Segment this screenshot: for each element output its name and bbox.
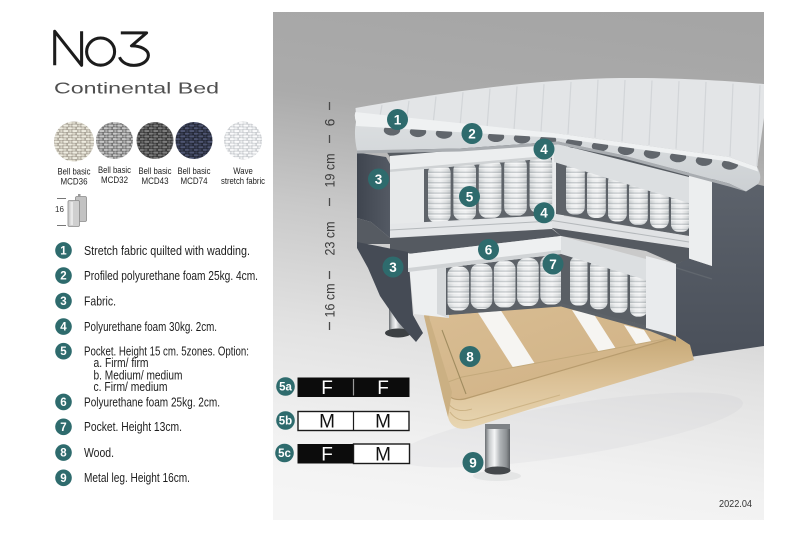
svg-text:9: 9 bbox=[469, 455, 477, 470]
svg-text:16: 16 bbox=[55, 205, 64, 214]
svg-text:19 cm: 19 cm bbox=[322, 154, 338, 188]
svg-text:1: 1 bbox=[60, 245, 67, 257]
svg-text:Profiled polyurethane foam 25k: Profiled polyurethane foam 25kg. 4cm. bbox=[84, 268, 258, 283]
svg-text:M: M bbox=[375, 445, 391, 466]
svg-text:MCD36: MCD36 bbox=[61, 177, 88, 188]
svg-text:MCD43: MCD43 bbox=[142, 176, 169, 187]
svg-text:5c: 5c bbox=[278, 448, 291, 460]
svg-text:5b: 5b bbox=[279, 416, 292, 428]
svg-text:5: 5 bbox=[60, 346, 67, 358]
svg-text:7: 7 bbox=[60, 422, 66, 434]
svg-text:3: 3 bbox=[389, 260, 397, 275]
svg-text:1: 1 bbox=[394, 112, 402, 127]
svg-text:M: M bbox=[375, 412, 391, 433]
svg-text:Wood.: Wood. bbox=[84, 445, 114, 460]
svg-text:Polyurethane foam 30kg. 2cm.: Polyurethane foam 30kg. 2cm. bbox=[84, 319, 217, 334]
svg-text:5: 5 bbox=[466, 189, 474, 204]
svg-text:Continental Bed: Continental Bed bbox=[54, 81, 219, 98]
svg-text:4: 4 bbox=[60, 322, 67, 334]
svg-text:2: 2 bbox=[468, 126, 476, 141]
svg-text:Polyurethane foam 25kg. 2cm.: Polyurethane foam 25kg. 2cm. bbox=[84, 394, 220, 409]
svg-text:7: 7 bbox=[549, 257, 557, 272]
svg-text:Fabric.: Fabric. bbox=[84, 293, 116, 308]
svg-text:F: F bbox=[377, 378, 389, 399]
svg-text:8: 8 bbox=[466, 349, 474, 364]
svg-text:6: 6 bbox=[485, 242, 493, 257]
svg-text:F: F bbox=[321, 445, 333, 466]
svg-text:Stretch fabric quilted with wa: Stretch fabric quilted with wadding. bbox=[84, 243, 250, 258]
svg-text:23 cm: 23 cm bbox=[322, 222, 338, 256]
svg-text:8: 8 bbox=[60, 448, 67, 460]
svg-text:Metal leg. Height 16cm.: Metal leg. Height 16cm. bbox=[84, 470, 190, 485]
svg-text:MCD74: MCD74 bbox=[181, 176, 208, 187]
svg-text:2022.04: 2022.04 bbox=[719, 498, 752, 510]
svg-text:F: F bbox=[321, 378, 333, 399]
svg-text:stretch fabric: stretch fabric bbox=[221, 176, 265, 187]
svg-text:Pocket. Height 13cm.: Pocket. Height 13cm. bbox=[84, 419, 182, 434]
svg-text:4: 4 bbox=[540, 206, 548, 221]
svg-text:6: 6 bbox=[60, 397, 66, 409]
svg-text:c. Firm/ medium: c. Firm/ medium bbox=[94, 379, 168, 394]
svg-text:2: 2 bbox=[60, 271, 66, 283]
svg-text:3: 3 bbox=[375, 172, 383, 187]
svg-text:M: M bbox=[319, 412, 335, 433]
svg-text:9: 9 bbox=[60, 473, 66, 485]
svg-text:6: 6 bbox=[322, 118, 338, 126]
svg-text:3: 3 bbox=[60, 296, 66, 308]
svg-text:4: 4 bbox=[540, 142, 548, 157]
svg-text:MCD32: MCD32 bbox=[101, 175, 128, 186]
svg-text:16 cm: 16 cm bbox=[322, 284, 338, 318]
svg-text:5a: 5a bbox=[279, 382, 292, 394]
